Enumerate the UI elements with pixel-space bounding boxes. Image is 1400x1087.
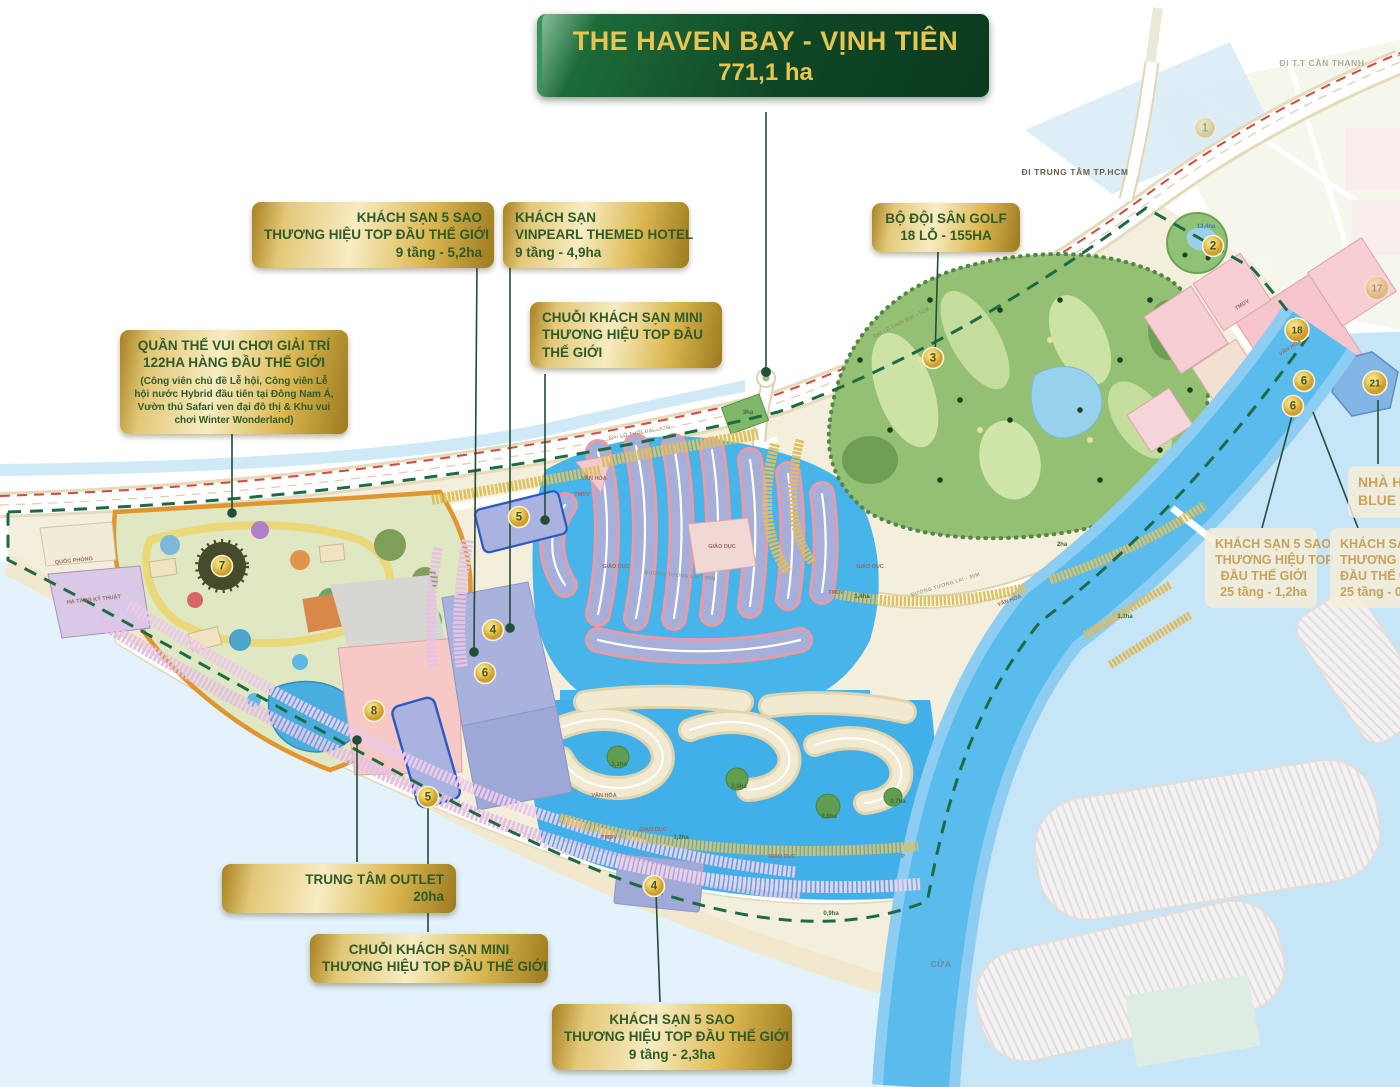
callout-line: THƯƠNG HIỆU TOP [1215,552,1307,568]
svg-text:2: 2 [1210,241,1216,253]
callout-line: 25 tầng - 0,9ha [1340,584,1400,600]
svg-text:3: 3 [930,353,936,365]
map-label: CỬA [930,958,951,969]
callout-line: THẾ GIỚI [542,344,710,361]
map-badge-7: 7 [212,556,233,577]
svg-text:6: 6 [482,668,488,680]
map-badge-6: 6 [1294,371,1315,392]
map-badge-5: 5 [509,507,530,528]
callout-note: (Công viên chủ đề Lễ hội, Công viên Lễ h… [132,375,336,427]
map-label: 0,8ha [821,814,837,820]
callout-blue-w: NHÀ H BLUE W [1348,466,1400,518]
callout-line: CHUỖI KHÁCH SẠN MINI [542,309,710,326]
map-badge-1: 1 [1195,118,1216,139]
map-label: 0,9ha [823,911,839,917]
map-badge-3: 3 [923,348,944,369]
map-label: GIÁO DỤC [602,563,630,570]
map-label: GIÁO DỤC [639,826,667,833]
map-badge-4: 4 [644,876,665,897]
map-label: 0,6ha [731,784,747,790]
map-label: 1,4ha [854,594,870,600]
callout-line: QUẦN THỂ VUI CHƠI GIẢI TRÍ [132,337,336,354]
map-label: 3ha [743,410,754,416]
callout-line: KHÁCH SẠN 5 SAO [1215,536,1307,552]
map-label: 2ha [1057,542,1068,548]
map-label: TMDV [828,590,844,596]
callout-hotel-25f-0-9ha: KHÁCH SẠN 5 SAO THƯƠNG HIỆU TO ĐẦU THẾ G… [1330,528,1400,608]
callout-line: KHÁCH SẠN 5 SAO [1340,536,1400,552]
callout-hotel-25f-1-2ha: KHÁCH SẠN 5 SAO THƯƠNG HIỆU TOP ĐẦU THẾ … [1205,528,1317,608]
svg-text:4: 4 [490,625,497,637]
svg-text:5: 5 [516,512,523,524]
callout-line: BỘ ĐỘI SÂN GOLF [884,210,1008,227]
map-label: P [901,854,905,860]
project-name: THE HAVEN BAY - VỊNH TIÊN [552,26,979,57]
map-label: 1,2ha [673,835,689,841]
svg-text:1: 1 [1202,123,1209,135]
svg-text:4: 4 [651,881,658,893]
callout-line: THƯƠNG HIỆU TOP ĐẦU THẾ GIỚI [564,1028,780,1045]
callout-line: 18 LỖ - 155HA [884,227,1008,244]
callout-line: CHUỖI KHÁCH SẠN MINI [322,941,536,958]
callout-mini-hotel-chain-bottom: CHUỖI KHÁCH SẠN MINI THƯƠNG HIỆU TOP ĐẦU… [310,934,548,983]
masterplan-poster: 123546785417186621 ĐI TRUNG TÂM TP.HCMĐI… [0,0,1400,1087]
callout-line: ĐẦU THẾ GIỚI [1215,568,1307,584]
map-badge-6: 6 [1283,396,1304,417]
svg-text:17: 17 [1371,284,1383,295]
callout-line: THƯƠNG HIỆU TOP ĐẦU [542,326,710,343]
map-label: GIÁO DỤC [768,853,796,860]
map-label: GIÁO DỤC [856,563,884,570]
svg-text:7: 7 [219,561,225,573]
map-badge-6: 6 [475,663,496,684]
callout-golf-course: BỘ ĐỘI SÂN GOLF 18 LỖ - 155HA [872,203,1020,252]
svg-text:6: 6 [1301,376,1307,388]
callout-mini-hotel-chain-top: CHUỖI KHÁCH SẠN MINI THƯƠNG HIỆU TOP ĐẦU… [530,302,722,368]
map-badge-18: 18 [1285,318,1309,342]
callout-line: THƯƠNG HIỆU TO [1340,552,1400,568]
svg-text:18: 18 [1291,326,1303,337]
callout-line: KHÁCH SẠN 5 SAO [564,1011,780,1028]
callout-line: BLUE W [1358,492,1400,510]
map-badge-2: 2 [1203,236,1224,257]
map-label: ĐI T.T CẦN THẠNH [1279,58,1364,68]
callout-line: KHÁCH SẠN 5 SAO [264,209,482,226]
map-label: VĂN HÓA [581,474,606,482]
callout-line: ĐẦU THẾ GIỚI [1340,568,1400,584]
map-label: VĂN HÓA [591,791,616,799]
map-label: 13,4ha [1197,224,1216,230]
map-label: ĐI TRUNG TÂM TP.HCM [1021,166,1128,177]
callout-line: KHÁCH SẠN [515,209,677,226]
callout-hotel-5star-2-3ha: KHÁCH SẠN 5 SAO THƯƠNG HIỆU TOP ĐẦU THẾ … [552,1004,792,1070]
svg-text:6: 6 [1290,401,1296,413]
callout-line: VINPEARL THEMED HOTEL [515,226,677,243]
callout-theme-park: QUẦN THỂ VUI CHƠI GIẢI TRÍ 122HA HÀNG ĐẦ… [120,330,348,434]
callout-line: NHÀ H [1358,474,1400,492]
callout-line: 9 tầng - 2,3ha [564,1046,780,1063]
callout-line: 9 tầng - 4,9ha [515,244,677,261]
callout-line: 25 tầng - 1,2ha [1215,584,1307,600]
map-label: 1,1ha [611,762,627,768]
map-label: TMDV [574,492,590,498]
svg-text:8: 8 [371,706,378,718]
callout-line: 20ha [234,888,444,905]
project-title-banner: THE HAVEN BAY - VỊNH TIÊN 771,1 ha [537,14,989,97]
callout-hotel-5star-5-2ha: KHÁCH SẠN 5 SAO THƯƠNG HIỆU TOP ĐẦU THẾ … [252,202,494,268]
map-badge-4: 4 [483,620,504,641]
callout-outlet-center: TRUNG TÂM OUTLET 20ha [222,864,456,913]
map-badge-8: 8 [364,701,385,722]
callout-line: TRUNG TÂM OUTLET [234,871,444,888]
masterplan-map: 123546785417186621 ĐI TRUNG TÂM TP.HCMĐI… [0,0,1400,1087]
map-label: TMDV [601,835,617,841]
map-badge-21: 21 [1363,371,1387,395]
callout-line: THƯƠNG HIỆU TOP ĐẦU THẾ GIỚI [322,958,536,975]
callout-line: 9 tầng - 5,2ha [264,244,482,261]
callout-line: 122HA HÀNG ĐẦU THẾ GIỚI [132,354,336,371]
map-badge-17: 17 [1365,276,1389,300]
map-label: 0,7ha [890,799,906,805]
map-badge-5: 5 [418,787,439,808]
svg-text:5: 5 [425,792,432,804]
callout-vinpearl-hotel: KHÁCH SẠN VINPEARL THEMED HOTEL 9 tầng -… [503,202,689,268]
map-label: GIÁO DỤC [708,543,736,550]
svg-text:21: 21 [1369,379,1381,390]
project-area: 771,1 ha [552,59,979,87]
golf-lake [1031,367,1102,438]
map-label: 1,1ha [1117,614,1133,620]
callout-line: THƯƠNG HIỆU TOP ĐẦU THẾ GIỚI [264,226,482,243]
